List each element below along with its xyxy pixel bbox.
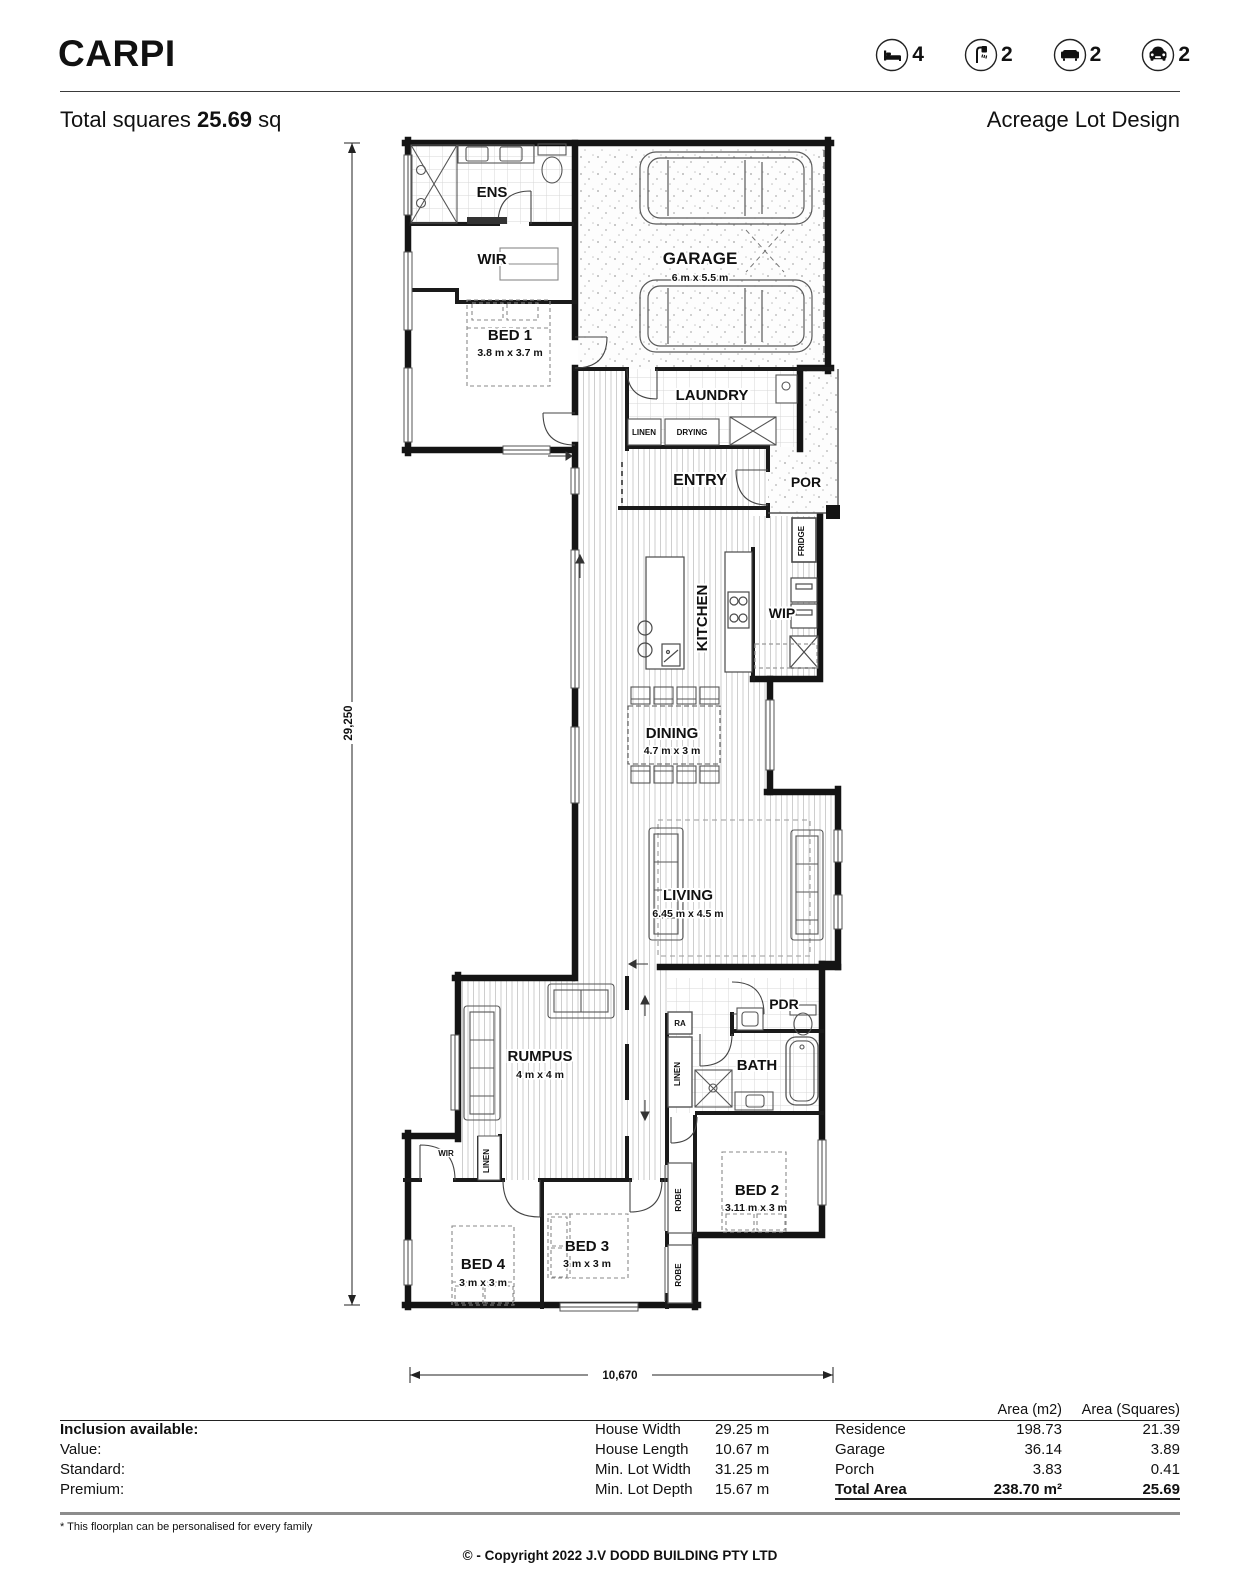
room-label-kitchen: KITCHEN — [694, 585, 711, 652]
area-squares: 0.41 — [1062, 1460, 1180, 1480]
room-dims-rumpus: 4 m x 4 m — [516, 1069, 564, 1081]
label-wir-lower: WIR — [438, 1149, 454, 1158]
room-dims-bed3: 3 m x 3 m — [563, 1258, 611, 1270]
room-label-bed4: BED 4 — [461, 1256, 506, 1273]
lot-value: 15.67 m — [715, 1480, 810, 1500]
label-fridge: FRIDGE — [797, 525, 806, 556]
room-dims-dining: 4.7 m x 3 m — [644, 745, 701, 757]
stat-bedrooms: 4 — [875, 38, 924, 72]
room-label-laundry: LAUNDRY — [676, 387, 749, 404]
area-m2: 36.14 — [958, 1440, 1062, 1460]
room-label-bath: BATH — [737, 1057, 778, 1074]
inclusion-row-label: Premium: — [60, 1480, 595, 1500]
area-total-m2: 238.70 m² — [958, 1480, 1062, 1500]
table-top-rule — [60, 1420, 1180, 1421]
inclusion-row-label: Value: — [60, 1440, 595, 1460]
lot-value: 29.25 m — [715, 1420, 810, 1440]
area-squares: 3.89 — [1062, 1440, 1180, 1460]
stat-garage: 2 — [1141, 38, 1190, 72]
area-label: Porch — [835, 1460, 958, 1480]
area-m2: 3.83 — [958, 1460, 1062, 1480]
label-linen-bath: LINEN — [673, 1062, 682, 1086]
label-drying: DRYING — [677, 428, 708, 437]
room-label-entry: ENTRY — [673, 472, 727, 489]
dimension-depth: 29,250 — [343, 143, 360, 1305]
area-total-squares: 25.69 — [1062, 1480, 1180, 1500]
feature-stats: 4 2 2 — [875, 38, 1190, 72]
shower-icon — [964, 38, 998, 72]
room-label-wir: WIR — [477, 251, 506, 268]
label-robe-bed3: ROBE — [674, 1263, 683, 1287]
room-label-porch: POR — [791, 474, 821, 490]
inclusion-row-label: Inclusion available: — [60, 1420, 595, 1440]
room-label-living: LIVING — [663, 887, 713, 904]
total-squares-value: 25.69 — [197, 107, 252, 132]
lot-value: 10.67 m — [715, 1440, 810, 1460]
stat-bathrooms: 2 — [964, 38, 1013, 72]
car-icon — [1141, 38, 1175, 72]
stat-living: 2 — [1053, 38, 1102, 72]
footer-divider — [60, 1512, 1180, 1515]
total-squares-unit: sq — [258, 107, 281, 132]
room-dims-bed2: 3.11 m x 3 m — [725, 1202, 787, 1214]
areas-col-m2: Area (m2) — [958, 1400, 1062, 1420]
lot-label: House Length — [595, 1440, 715, 1460]
area-m2: 198.73 — [958, 1420, 1062, 1440]
copyright: © - Copyright 2022 J.V DODD BUILDING PTY… — [0, 1548, 1240, 1563]
total-squares-label: Total squares — [60, 107, 191, 132]
room-label-pdr: PDR — [769, 996, 799, 1012]
header-divider — [60, 91, 1180, 92]
area-squares: 21.39 — [1062, 1420, 1180, 1440]
area-label: Garage — [835, 1440, 958, 1460]
dimension-width: 10,670 — [410, 1367, 833, 1383]
specs-table: Area (m2) Area (Squares) Inclusion avail… — [60, 1400, 1180, 1500]
area-total-label: Total Area — [835, 1480, 958, 1500]
footnote: * This floorplan can be personalised for… — [60, 1521, 312, 1533]
room-label-garage: GARAGE — [663, 249, 738, 268]
areas-col-squares: Area (Squares) — [1062, 1400, 1180, 1420]
label-robe-bed2: ROBE — [674, 1188, 683, 1212]
label-ra: RA — [674, 1019, 686, 1028]
lot-label: Min. Lot Width — [595, 1460, 715, 1480]
lot-label: House Width — [595, 1420, 715, 1440]
inclusion-row-label: Standard: — [60, 1460, 595, 1480]
floorplan-page: CARPI 4 2 — [0, 0, 1240, 1583]
room-label-bed2: BED 2 — [735, 1182, 779, 1199]
room-label-rumpus: RUMPUS — [507, 1048, 572, 1065]
room-dims-bed4: 3 m x 3 m — [459, 1277, 507, 1289]
label-linen-lower: LINEN — [482, 1149, 491, 1173]
lot-value: 31.25 m — [715, 1460, 810, 1480]
room-dims-garage: 6 m x 5.5 m — [672, 272, 729, 284]
dimension-width-label: 10,670 — [602, 1370, 637, 1382]
sofa-icon — [1053, 38, 1087, 72]
room-label-ens: ENS — [477, 184, 508, 201]
stat-bedrooms-count: 4 — [912, 43, 924, 67]
dimension-depth-label: 29,250 — [343, 705, 355, 740]
floor-finishes — [411, 143, 838, 1180]
design-type: Acreage Lot Design — [987, 107, 1180, 133]
page-title: CARPI — [58, 33, 176, 75]
room-label-dining: DINING — [646, 725, 699, 742]
room-dims-living: 6.45 m x 4.5 m — [652, 908, 723, 920]
area-label: Residence — [835, 1420, 958, 1440]
floorplan-drawing: 29,250 10,670 ENS WIR BED 1 3.8 m x 3.7 … — [325, 130, 885, 1390]
label-linen-laundry: LINEN — [632, 428, 656, 437]
room-label-bed3: BED 3 — [565, 1238, 609, 1255]
room-dims-bed1: 3.8 m x 3.7 m — [477, 347, 542, 359]
stat-living-count: 2 — [1090, 43, 1102, 67]
room-label-bed1: BED 1 — [488, 327, 532, 344]
room-label-wip: WIP — [769, 605, 795, 621]
lot-label: Min. Lot Depth — [595, 1480, 715, 1500]
stat-garage-count: 2 — [1178, 43, 1190, 67]
stat-bathrooms-count: 2 — [1001, 43, 1013, 67]
total-squares: Total squares 25.69 sq — [60, 107, 281, 133]
bed-icon — [875, 38, 909, 72]
